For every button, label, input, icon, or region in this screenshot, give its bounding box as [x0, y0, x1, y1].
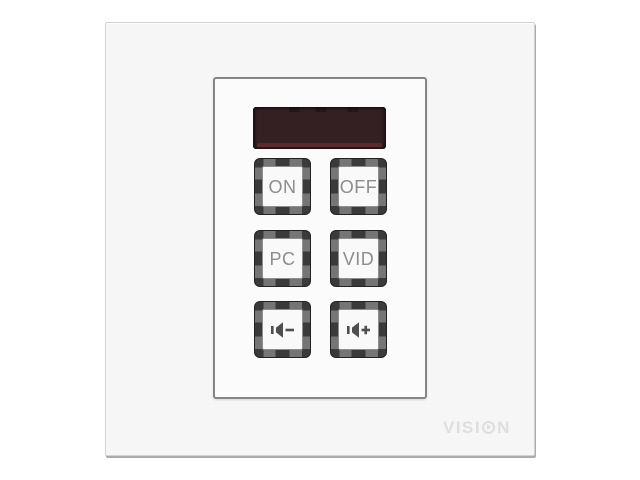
vision-logo-text-right: N [497, 419, 511, 436]
button-pc-label: PC [262, 238, 303, 279]
speaker-minus-icon [262, 309, 303, 350]
button-pc[interactable]: PC [254, 230, 311, 287]
button-on-label: ON [262, 166, 303, 207]
vision-logo: VISI N [443, 419, 511, 435]
button-vid-label: VID [338, 238, 379, 279]
button-volume-up[interactable] [330, 301, 387, 358]
button-off[interactable]: OFF [330, 158, 387, 215]
button-off-label: OFF [338, 166, 379, 207]
button-on[interactable]: ON [254, 158, 311, 215]
speaker-plus-icon [338, 309, 379, 350]
led-display [253, 107, 386, 149]
control-panel: ON OFF PC VID [213, 77, 427, 399]
button-vid[interactable]: VID [330, 230, 387, 287]
led-display-text [253, 107, 386, 149]
button-volume-down[interactable] [254, 301, 311, 358]
faceplate: ON OFF PC VID [105, 22, 535, 456]
vision-logo-text-left: VISI [443, 419, 481, 436]
vision-logo-play-icon [482, 421, 495, 434]
